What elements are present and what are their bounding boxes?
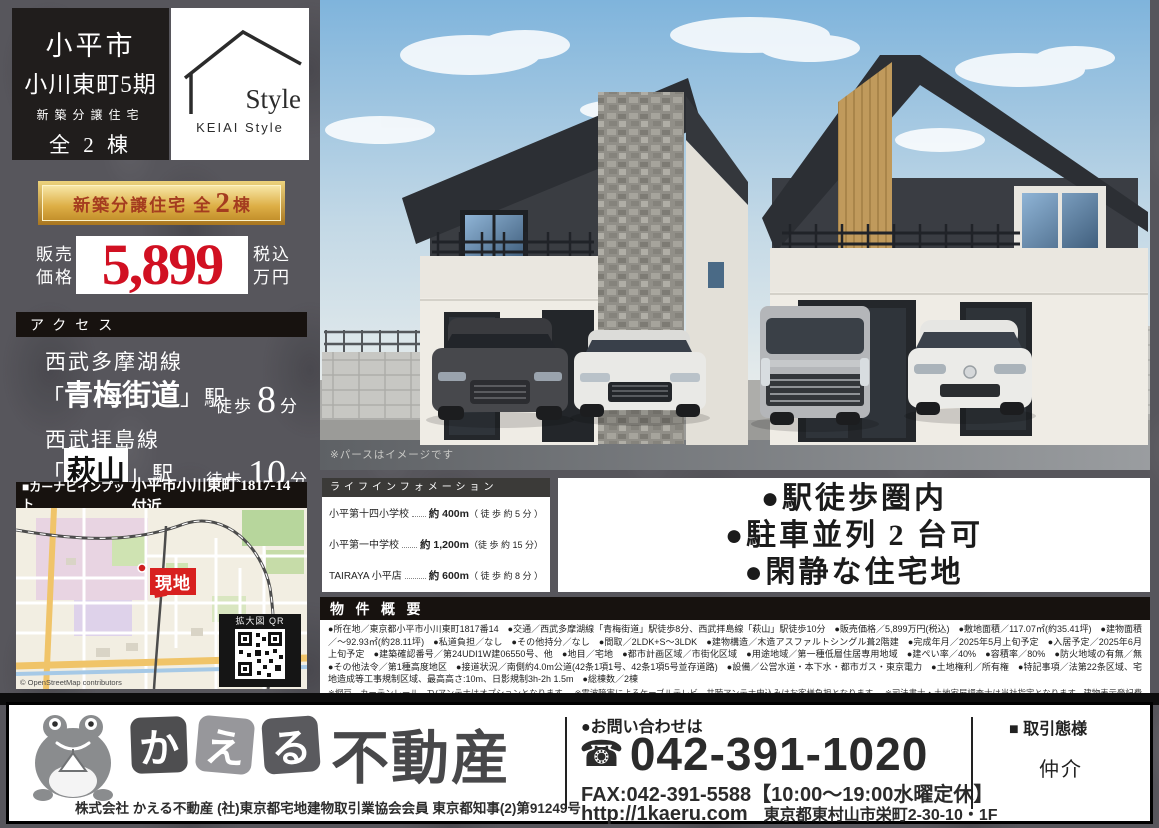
feature-quiet: ●閑静な住宅地 [744,554,963,591]
banner-label: 新築分譲住宅 全 [73,191,212,216]
logo-tile-ru: る [261,715,321,775]
office-address: 東京都東村山市栄町2-30-10・1F [764,801,998,825]
station-walk-1: 徒歩 8 分 [215,378,297,422]
left-wall-fence [322,330,428,418]
banner-unit: 棟 [233,191,250,216]
navi-label: ■カーナビインプット [22,478,127,512]
dotted-leader [402,539,417,548]
access-header: アクセス [30,315,121,335]
title-city: 小平市 [12,24,169,63]
life-information-header: ライフインフォメーション [322,478,550,497]
footer: か え る 不動産 株式会社 かえる不動産 (社)東京都宅地建物取引業協会会員 … [6,702,1153,824]
access-header-bar: アクセス [16,312,307,337]
phone-number[interactable]: 042-391-1020 [630,727,928,781]
company-license: 株式会社 かえる不動産 (社)東京都宅地建物取引業協会会員 東京都知事(2)第9… [75,797,581,817]
brand-name: Style [245,84,301,115]
price-tax-label: 税込万円 [253,243,291,289]
life-item-junior-high: 小平第一中学校 約 1,200m （徒 歩 約 15 分） [329,536,543,552]
deal-type: 仲介 [1039,753,1083,782]
navi-header-bar: ■カーナビインプット 小平市小川東町 1817-14 付近 [16,482,307,508]
life-information-panel: ライフインフォメーション 小平第十四小学校 約 400m （ 徒 歩 約 5 分… [322,478,550,592]
banner-number: 2 [215,187,230,220]
area-map: 現地 拡大図 QR © OpenStreetMap contributors [16,508,307,689]
deal-type-label: ■ 取引態様 [1009,715,1087,739]
car-hatchback [904,320,1036,424]
life-item-elementary: 小平第十四小学校 約 400m （ 徒 歩 約 5 分 ） [329,505,543,521]
life-item-supermarket: TAIRAYA 小平店 約 600m （ 徒 歩 約 8 分 ） [329,567,543,583]
phone-row: ☎ 042-391-1020 [579,727,928,781]
features-panel: ●駅徒歩圏内 ●駐車並列 2 台可 ●閑静な住宅地 [558,478,1150,592]
qr-panel[interactable]: 拡大図 QR [219,614,301,687]
price-label: 販売価格 [36,243,74,289]
qr-code[interactable] [235,629,285,679]
dotted-leader [405,570,426,579]
overview-header: 物 件 概 要 [330,599,425,619]
gold-banner: 新築分譲住宅 全 2 棟 [38,181,285,225]
site-location-badge: 現地 [150,568,196,595]
car-sedan [570,330,710,426]
footer-divider-2 [971,717,973,809]
price-amount-box: 5,899 [76,236,248,294]
title-subtitle: 新築分譲住宅 [12,106,169,123]
rendering-disclaimer: ※パースはイメージです [330,447,454,462]
title-block: 小平市 小川東町5期 新築分譲住宅 全 2 棟 [12,8,169,160]
brand-subtext: KEIAI Style [171,120,309,135]
logo-tile-ka: か [130,716,188,774]
logo-tile-e: え [195,715,256,776]
feature-parking: ●駐車並列 2 台可 [725,517,983,554]
phone-icon: ☎ [579,733,624,775]
house-rendering [320,0,1150,470]
feature-station: ●駅徒歩圏内 [761,480,947,517]
footer-divider-1 [565,717,567,809]
frog-logo-icon [27,711,119,803]
brand-box: Style KEIAI Style [171,8,309,160]
qr-label: 拡大図 QR [219,614,301,629]
car-suv [426,318,574,428]
station-name-1: 「 青梅街道 」 駅 [42,372,225,414]
car-minivan [751,306,879,432]
logo-suffix: 不動産 [331,711,511,795]
flyer-page: ※パースはイメージです 小平市 小川東町5期 新築分譲住宅 全 2 棟 Styl… [0,0,1159,828]
url-row: http://1kaeru.com 東京都東村山市栄町2-30-10・1F [581,801,998,826]
overview-header-bar: 物 件 概 要 [320,597,1150,620]
title-name: 小川東町5期 [12,65,169,99]
overview-body: ●所在地／東京都小平市小川東町1817番14 ●交通／西武多摩湖線「青梅街道」駅… [320,620,1150,693]
overview-details: ●所在地／東京都小平市小川東町1817番14 ●交通／西武多摩湖線「青梅街道」駅… [328,623,1142,686]
map-attribution: © OpenStreetMap contributors [20,678,122,687]
price-amount: 5,899 [102,236,223,294]
dotted-leader [412,508,426,517]
title-count: 全 2 棟 [12,129,169,159]
website-url[interactable]: http://1kaeru.com [581,803,748,826]
